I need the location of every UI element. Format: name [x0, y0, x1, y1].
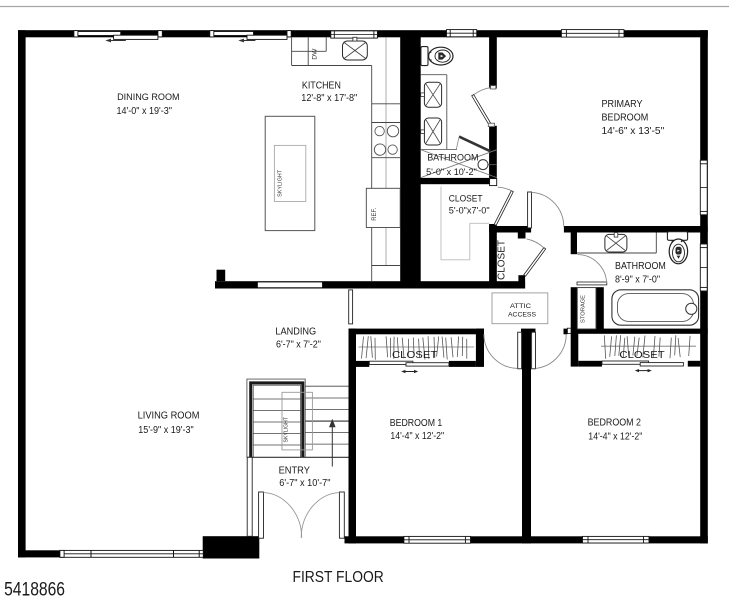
svg-text:12'-8" x 17'-8": 12'-8" x 17'-8" — [301, 93, 357, 104]
svg-text:BEDROOM 1: BEDROOM 1 — [390, 418, 443, 429]
svg-text:ENTRY: ENTRY — [279, 465, 311, 476]
svg-text:BATHROOM: BATHROOM — [615, 261, 666, 272]
svg-text:5'-0" x 10'-2": 5'-0" x 10'-2" — [426, 167, 477, 177]
svg-text:15'-9" x 19'-3": 15'-9" x 19'-3" — [138, 425, 194, 436]
svg-text:DW: DW — [311, 48, 318, 60]
svg-text:14'-6" x 13'-5": 14'-6" x 13'-5" — [602, 126, 665, 137]
svg-text:ATTIC: ATTIC — [510, 303, 531, 310]
svg-text:BEDROOM: BEDROOM — [602, 113, 649, 124]
svg-text:LANDING: LANDING — [275, 327, 316, 338]
svg-text:6'-7" x 7'-2": 6'-7" x 7'-2" — [276, 339, 321, 350]
svg-text:CLOSET: CLOSET — [392, 350, 437, 361]
svg-text:8'-9" x 7'-0": 8'-9" x 7'-0" — [615, 274, 660, 285]
svg-text:DINING ROOM: DINING ROOM — [117, 92, 180, 103]
svg-text:BATHROOM: BATHROOM — [427, 153, 478, 163]
svg-text:SKYLIGHT: SKYLIGHT — [283, 416, 289, 442]
svg-text:PRIMARY: PRIMARY — [602, 99, 643, 110]
svg-text:14'-4" x 12'-2": 14'-4" x 12'-2" — [588, 432, 642, 443]
svg-text:REF.: REF. — [371, 208, 378, 221]
svg-text:ACCESS: ACCESS — [508, 312, 537, 319]
svg-text:5418866: 5418866 — [4, 580, 65, 600]
svg-text:LIVING ROOM: LIVING ROOM — [138, 411, 200, 422]
svg-text:KITCHEN: KITCHEN — [302, 80, 341, 91]
svg-text:CLOSET: CLOSET — [497, 240, 508, 280]
svg-text:CLOSET: CLOSET — [449, 192, 483, 203]
svg-text:14'-0" x 19'-3": 14'-0" x 19'-3" — [117, 106, 173, 117]
svg-text:SKYLIGHT: SKYLIGHT — [278, 169, 284, 196]
svg-text:CLOSET: CLOSET — [619, 350, 664, 361]
svg-text:BEDROOM 2: BEDROOM 2 — [588, 418, 642, 429]
svg-text:6'-7" x 10'-7": 6'-7" x 10'-7" — [279, 478, 331, 489]
svg-text:5'-0"x7'-0": 5'-0"x7'-0" — [449, 204, 490, 215]
svg-text:STORAGE: STORAGE — [581, 295, 587, 323]
svg-text:FIRST FLOOR: FIRST FLOOR — [293, 569, 384, 586]
svg-text:14'-4" x 12'-2": 14'-4" x 12'-2" — [390, 431, 444, 442]
